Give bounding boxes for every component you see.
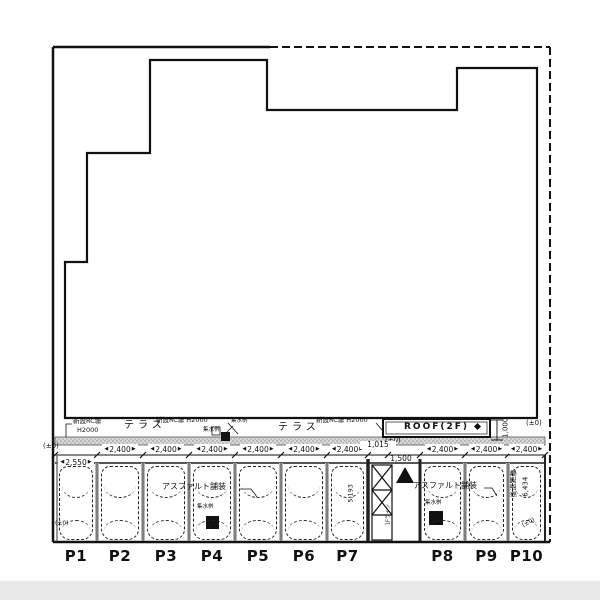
drain-label-p4: 集水桝 [197, 505, 214, 511]
setback-dim: 6,434 [522, 471, 529, 503]
stall-width-dim: 2,400 [509, 444, 544, 454]
floor-line-label: 1Fライン [386, 502, 391, 528]
level-right-edge: (±0) [526, 420, 542, 427]
entrance-width-dim: 1,500 [386, 455, 416, 463]
stall-width-dim: 2,400 [102, 444, 137, 454]
fence-label-left-line1: 新設RC塀 [73, 418, 101, 425]
site-plan: 新設RC塀 H2000 テラス 新設RC塀 H2000 集水桝 集水桝 テラス … [0, 0, 600, 600]
stall-id: P9 [465, 547, 508, 565]
building-outline [65, 60, 537, 418]
stall-id: P5 [235, 547, 281, 565]
parking-stall-p9: 2,400 P9 [465, 440, 508, 570]
parking-stall-p2: 2,400 P2 [97, 440, 143, 570]
stall-width-dim: 2,400 [148, 444, 183, 454]
car-outline [285, 466, 323, 540]
terrace-label-2: テラス [278, 423, 320, 434]
stall-id: P6 [281, 547, 327, 565]
roof-depth-dim: 1,000 [502, 413, 509, 443]
stall-width-dim: 2,400 [469, 444, 504, 454]
stall-width-dim: 2,400 [425, 444, 460, 454]
stall-id: P2 [97, 547, 143, 565]
parking-stall-p10: 2,400 P10 [508, 440, 545, 570]
car-outline [101, 466, 139, 540]
car-outline [147, 466, 185, 540]
entrance-triangle-icon [396, 467, 414, 483]
parking-stall-p5: 2,400 P5 [235, 440, 281, 570]
bottom-gray-bar [0, 581, 600, 600]
stall-width-dim: 2,400 [194, 444, 229, 454]
asphalt-label-1: アスファルト舗装 [162, 483, 226, 491]
drain-label-terrace-1: 集水桝 [231, 419, 248, 425]
level-bottom-left: (±0) [55, 521, 69, 527]
stall-depth-dim: 5,193 [348, 478, 355, 508]
gap-width-dim: 1,015 [360, 441, 396, 449]
roof-label: ROOF(2F) [383, 419, 490, 437]
setback-label: 後退距離 [510, 468, 517, 500]
drain-label-terrace-2: 集水桝 [203, 428, 220, 434]
asphalt-label-2: アスファルト舗装 [413, 482, 477, 490]
level-top-left: (±0) [43, 443, 59, 450]
parking-stall-p6: 2,400 P6 [281, 440, 327, 570]
stall-width-dim: 2,400 [286, 444, 321, 454]
stall-id: P3 [143, 547, 189, 565]
car-outline [469, 466, 504, 540]
drain-label-p8: 集水桝 [425, 501, 442, 507]
car-outline [59, 466, 93, 540]
stall-id: P4 [189, 547, 235, 565]
stall-id: P10 [508, 547, 545, 565]
stall-id: P7 [327, 547, 368, 565]
stall-width-dim: 2,400 [240, 444, 275, 454]
stall-id: P1 [55, 547, 97, 565]
car-outline [193, 466, 231, 540]
fence-label-right: 新設RC塀 H2000 [316, 417, 368, 424]
parking-stall-p3: 2,400 P3 [143, 440, 189, 570]
car-outline [239, 466, 277, 540]
fence-label-left-line2: H2000 [77, 427, 98, 434]
stall-id: P8 [420, 547, 465, 565]
parking-stall-p1: (±0) 2,550 P1 [55, 440, 97, 570]
fence-label-mid: 新設RC塀 H2000 [156, 417, 208, 424]
